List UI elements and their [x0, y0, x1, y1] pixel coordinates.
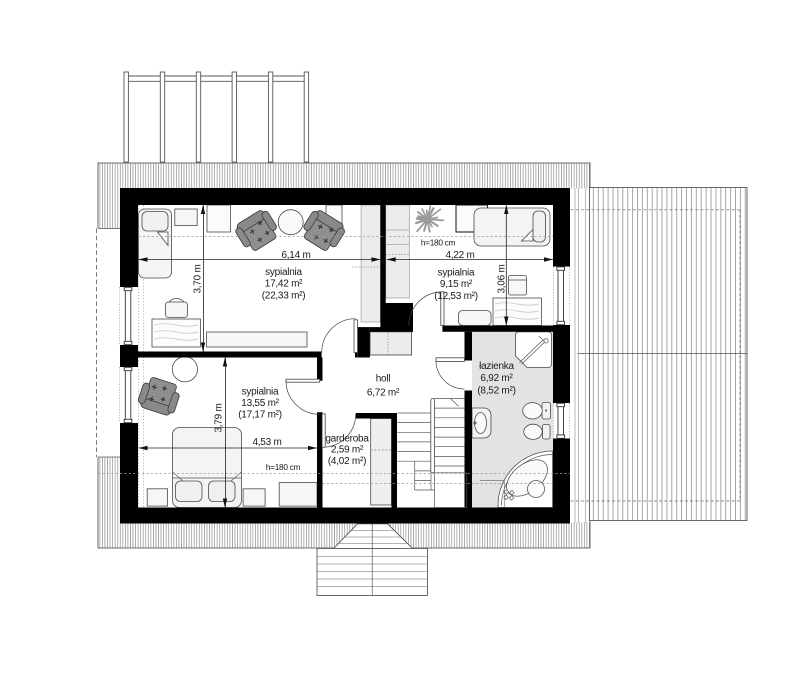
svg-text:6,72 m²: 6,72 m²: [367, 388, 400, 399]
svg-text:6,14 m: 6,14 m: [281, 250, 310, 261]
svg-text:(17,17 m²): (17,17 m²): [238, 409, 282, 420]
svg-text:holl: holl: [376, 374, 391, 385]
svg-text:3,70 m: 3,70 m: [193, 264, 204, 293]
svg-text:h=180 cm: h=180 cm: [266, 462, 301, 472]
svg-text:(8,52 m²): (8,52 m²): [477, 386, 515, 397]
svg-text:sypialnia: sypialnia: [242, 387, 279, 398]
svg-text:(12,53 m²): (12,53 m²): [434, 291, 478, 302]
svg-text:(22,33 m²): (22,33 m²): [262, 290, 306, 301]
svg-text:9,15 m²: 9,15 m²: [440, 279, 473, 290]
svg-text:sypialnia: sypialnia: [265, 267, 302, 278]
svg-text:17,42 m²: 17,42 m²: [265, 279, 303, 290]
svg-text:4,53 m: 4,53 m: [252, 437, 281, 448]
svg-text:(4,02 m²): (4,02 m²): [328, 456, 366, 467]
svg-text:2,59 m²: 2,59 m²: [331, 445, 364, 456]
svg-text:13,55 m²: 13,55 m²: [241, 398, 279, 409]
svg-text:3,06 m: 3,06 m: [497, 264, 508, 293]
svg-text:3,79 m: 3,79 m: [214, 403, 225, 432]
svg-text:łazienka: łazienka: [479, 361, 514, 372]
svg-text:garderoba: garderoba: [325, 434, 369, 445]
svg-text:h=180 cm: h=180 cm: [421, 238, 456, 248]
svg-text:4,22 m: 4,22 m: [445, 250, 474, 261]
svg-text:sypialnia: sypialnia: [438, 268, 475, 279]
svg-text:6,92 m²: 6,92 m²: [480, 373, 513, 384]
